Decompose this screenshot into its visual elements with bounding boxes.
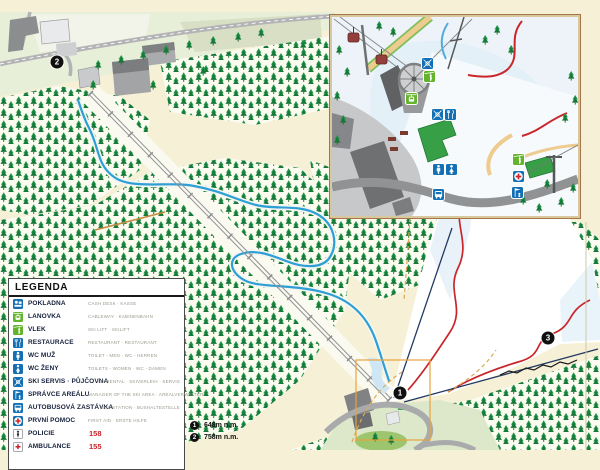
wc-man-icon	[13, 351, 23, 361]
wc-man-icon	[433, 164, 444, 175]
wc-woman-icon	[13, 364, 23, 374]
legend-label: RESTAURACE	[28, 339, 83, 346]
legend-item: SKI SERVIS · PŮJČOVNASKI RENTAL · SKIVER…	[9, 375, 184, 388]
legend-sublabel: CABLEWAY · KABINENBAHN	[88, 314, 153, 319]
legend-label: AMBULANCE	[28, 443, 83, 450]
area-manager-icon	[13, 390, 23, 400]
ski-resort-map-page: { "legend": { "title": "LEGENDA", "items…	[0, 0, 600, 450]
legend-sublabel: BUS STATION · BUSHALTESTELLE	[101, 405, 180, 410]
cable-car-icon	[406, 93, 417, 104]
bus-icon	[13, 403, 23, 413]
legend-sublabel: SKI LIFT · SKILIFT	[88, 327, 130, 332]
cable-car-icon	[13, 312, 23, 322]
altitude-value: 648m n.m.	[204, 422, 238, 429]
legend-sublabel: RESTAURANT · RESTAURANT	[88, 340, 157, 345]
legend-label: SKI SERVIS · PŮJČOVNA	[28, 378, 92, 385]
legend-title: LEGENDA	[9, 279, 184, 297]
altitude-marker-number: 2	[190, 433, 199, 442]
legend-label: PRVNÍ POMOC	[28, 417, 83, 424]
ski-lift-icon	[13, 325, 23, 335]
legend-sublabel: TOILET - MEN · WC - HERREN	[88, 353, 157, 358]
legend-label: WC MUŽ	[28, 352, 83, 359]
legend-label: LANOVKA	[28, 313, 83, 320]
emergency-number: 158	[89, 429, 102, 438]
restaurant-icon	[13, 338, 23, 348]
legend-item: WC MUŽTOILET - MEN · WC - HERREN	[9, 349, 184, 362]
cash-desk-icon	[13, 299, 23, 309]
altitude-list: 1648m n.m.2758m n.m.	[190, 421, 238, 445]
legend-item: AUTOBUSOVÁ ZASTÁVKABUS STATION · BUSHALT…	[9, 401, 184, 414]
ambulance-icon	[13, 442, 23, 452]
ski-service-icon	[432, 109, 443, 120]
legend-item: POLICIE158	[9, 427, 184, 440]
ski-service-icon	[13, 377, 23, 387]
wc-woman-icon	[446, 164, 457, 175]
legend-sublabel: SKI RENTAL · SKIVERLEIH · SERVIS	[97, 379, 180, 384]
police-icon	[13, 429, 23, 439]
legend-label: POLICIE	[28, 430, 83, 437]
legend-sublabel: TOILETS - WOMEN · WC - DAMEN	[88, 366, 166, 371]
legend-item: PRVNÍ POMOCFIRST AID · ERSTE HILFE	[9, 414, 184, 427]
legend-item: LANOVKACABLEWAY · KABINENBAHN	[9, 310, 184, 323]
legend-item: VLEKSKI LIFT · SKILIFT	[9, 323, 184, 336]
legend-sublabel: MANAGER OF THE SKI AREA · AREALVERWALTER	[88, 392, 204, 397]
area-manager-icon	[512, 187, 523, 198]
legend-item: SPRÁVCE AREÁLUMANAGER OF THE SKI AREA · …	[9, 388, 184, 401]
ski-lift-icon	[424, 71, 435, 82]
legend-sublabel: CASH DESK · KASSE	[88, 301, 136, 306]
ski-service-icon	[422, 58, 433, 69]
legend-label: AUTOBUSOVÁ ZASTÁVKA	[28, 404, 96, 411]
first-aid-icon	[513, 171, 524, 182]
altitude-value: 758m n.m.	[204, 434, 238, 441]
first-aid-icon	[13, 416, 23, 426]
legend-panel: LEGENDA POKLADNACASH DESK · KASSELANOVKA…	[8, 278, 185, 470]
legend-item: AMBULANCE155	[9, 440, 184, 453]
legend-label: POKLADNA	[28, 300, 83, 307]
legend-item: WC ŽENYTOILETS - WOMEN · WC - DAMEN	[9, 362, 184, 375]
legend-label: VLEK	[28, 326, 83, 333]
ski-lift-icon	[513, 154, 524, 165]
altitude-item: 1648m n.m.	[190, 421, 238, 430]
altitude-marker-number: 1	[190, 421, 199, 430]
legend-label: SPRÁVCE AREÁLU	[28, 391, 83, 398]
legend-sublabel: FIRST AID · ERSTE HILFE	[88, 418, 147, 423]
altitude-item: 2758m n.m.	[190, 433, 238, 442]
inset-map	[330, 15, 580, 218]
restaurant-icon	[445, 109, 456, 120]
legend-rows: POKLADNACASH DESK · KASSELANOVKACABLEWAY…	[9, 297, 184, 453]
legend-label: WC ŽENY	[28, 365, 83, 372]
legend-item: POKLADNACASH DESK · KASSE	[9, 297, 184, 310]
bus-icon	[433, 189, 444, 200]
legend-item: RESTAURACERESTAURANT · RESTAURANT	[9, 336, 184, 349]
